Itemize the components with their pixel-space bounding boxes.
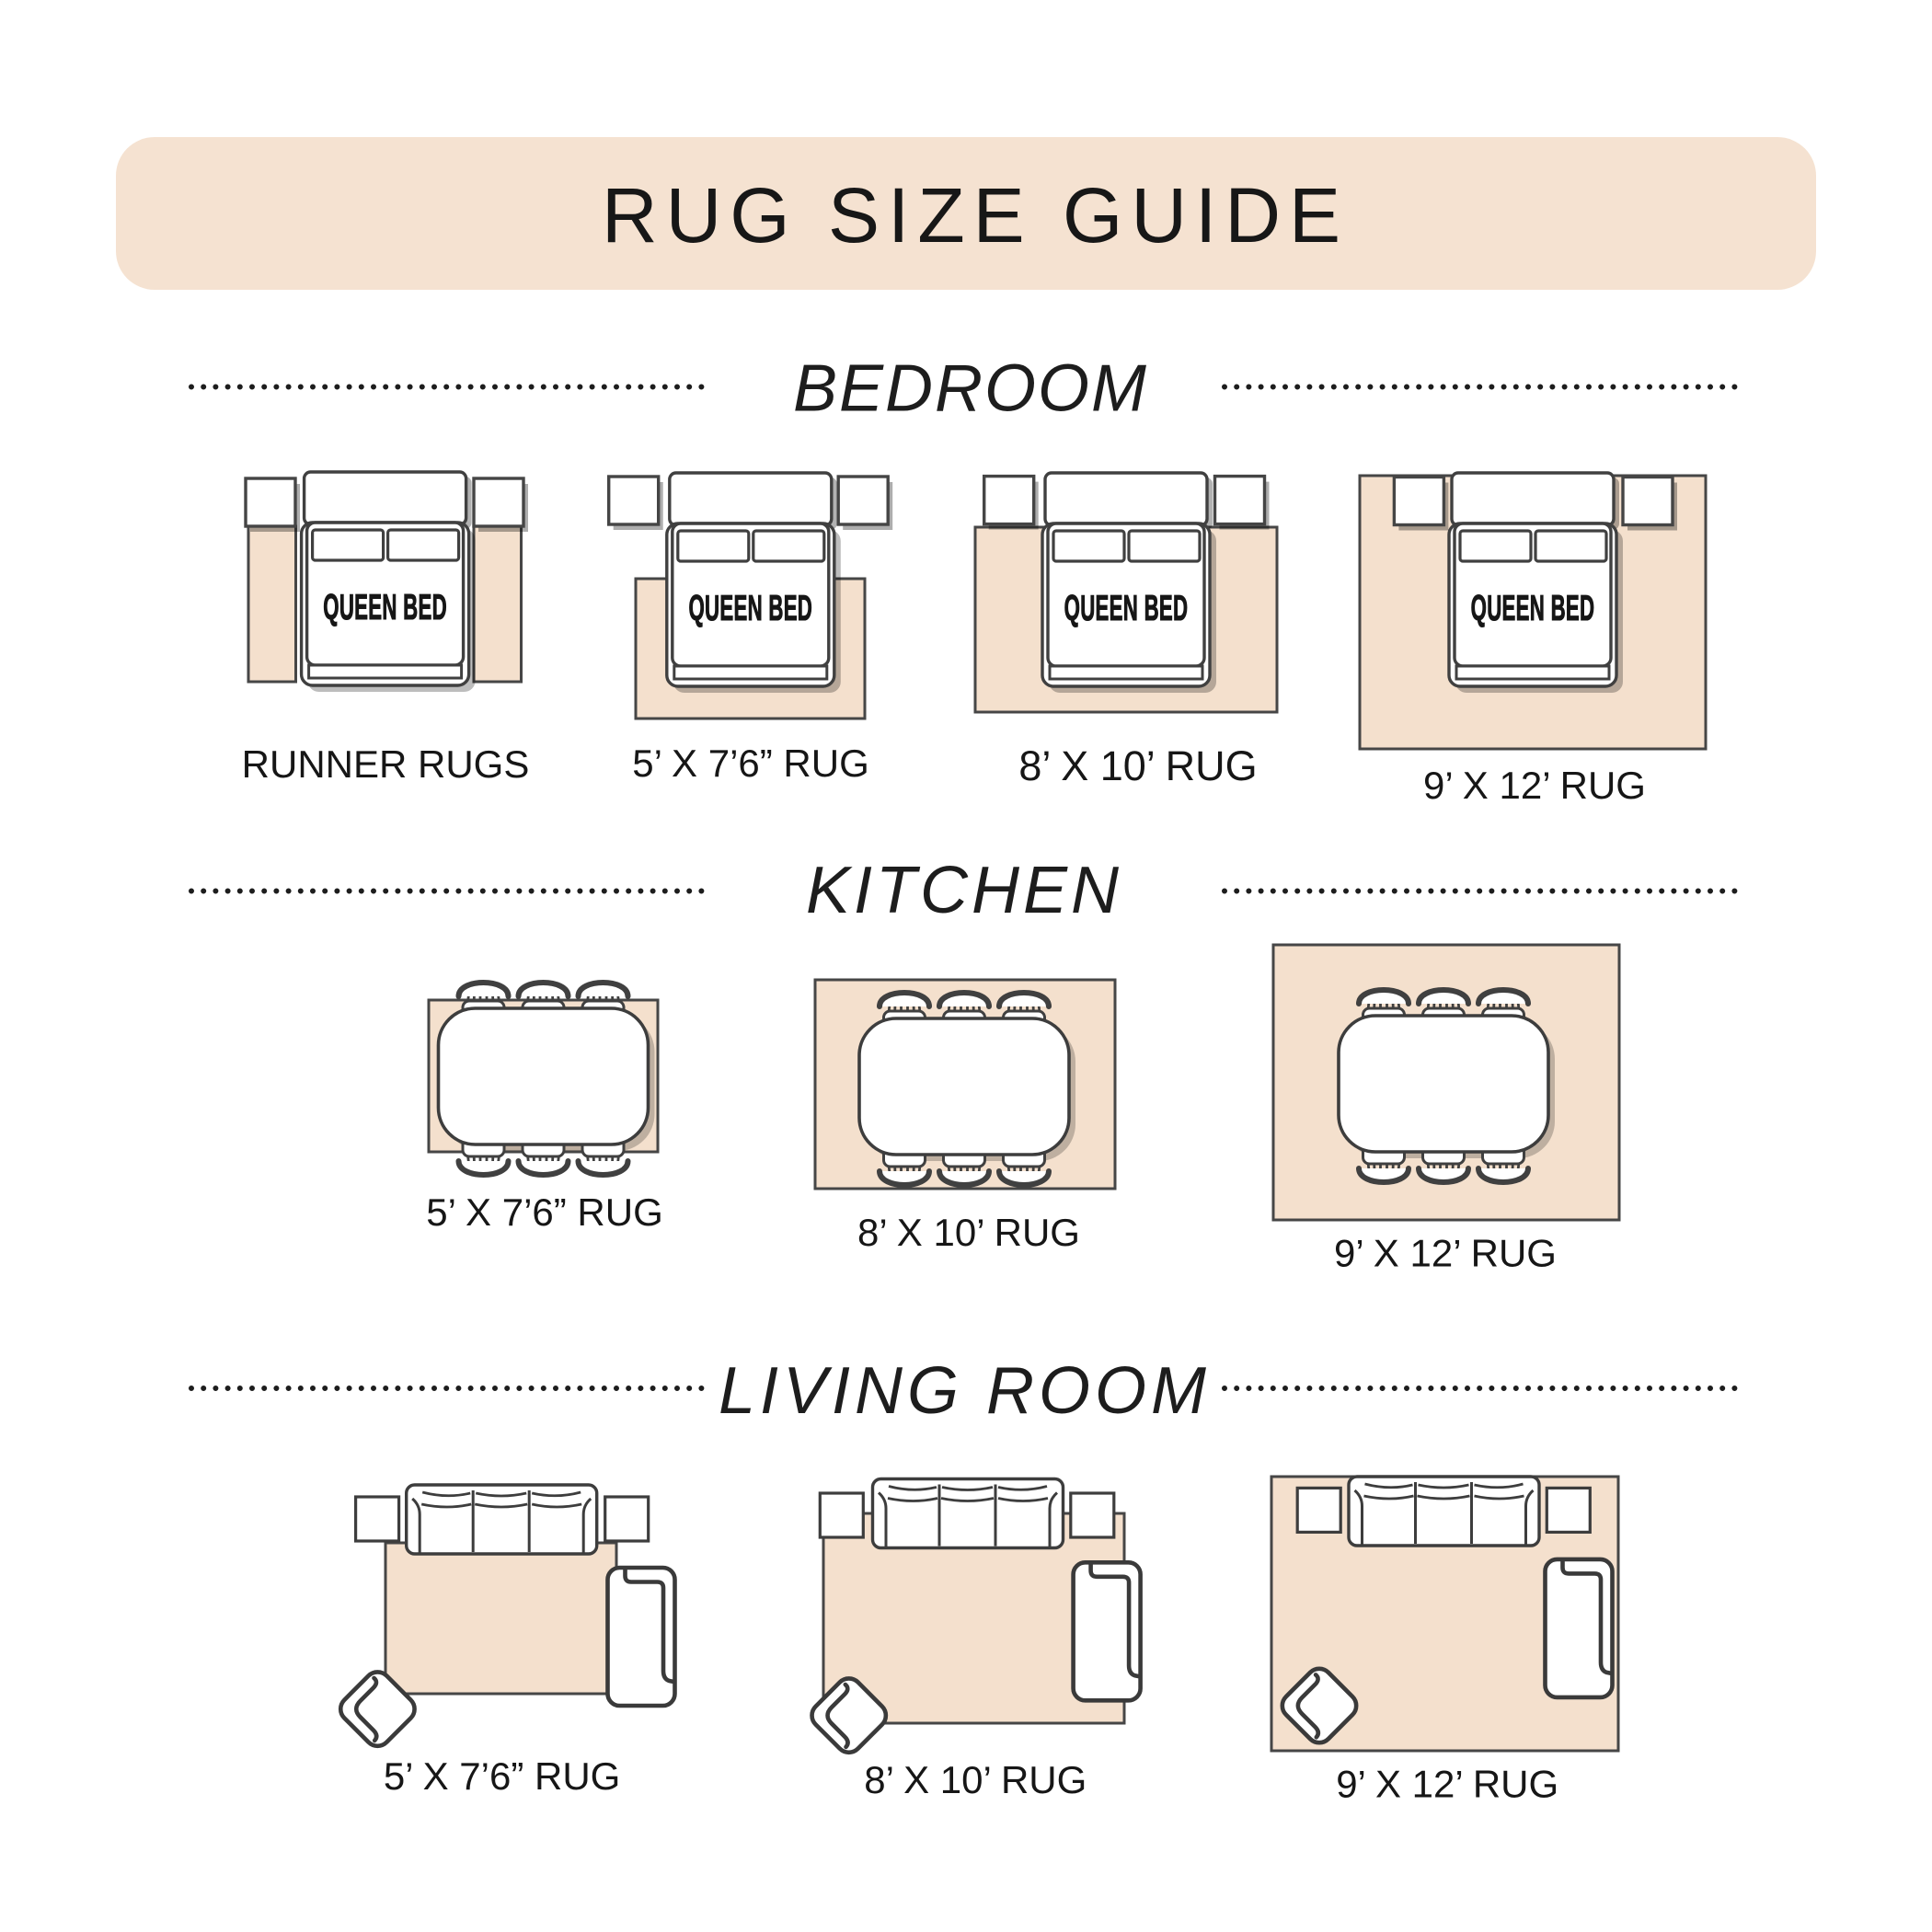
svg-text:5’ X 7’6” RUG: 5’ X 7’6” RUG bbox=[426, 1190, 663, 1234]
svg-text:9’ X 12’ RUG: 9’ X 12’ RUG bbox=[1334, 1232, 1557, 1275]
svg-text:5’ X 7’6” RUG: 5’ X 7’6” RUG bbox=[632, 742, 869, 785]
svg-text:8’ X 10’ RUG: 8’ X 10’ RUG bbox=[857, 1211, 1080, 1254]
svg-text:9’ X 12’ RUG: 9’ X 12’ RUG bbox=[1336, 1762, 1558, 1805]
svg-text:BEDROOM: BEDROOM bbox=[793, 352, 1148, 426]
svg-text:LIVING ROOM: LIVING ROOM bbox=[719, 1354, 1211, 1428]
svg-text:KITCHEN: KITCHEN bbox=[806, 854, 1122, 927]
svg-text:8’ X 10’ RUG: 8’ X 10’ RUG bbox=[864, 1758, 1087, 1801]
svg-text:RUG SIZE GUIDE: RUG SIZE GUIDE bbox=[602, 172, 1349, 259]
svg-text:5’ X 7’6” RUG: 5’ X 7’6” RUG bbox=[384, 1754, 621, 1798]
svg-text:RUNNER RUGS: RUNNER RUGS bbox=[242, 742, 530, 786]
svg-text:8’ X 10’ RUG: 8’ X 10’ RUG bbox=[1018, 742, 1257, 789]
svg-text:9’ X 12’ RUG: 9’ X 12’ RUG bbox=[1423, 764, 1646, 807]
